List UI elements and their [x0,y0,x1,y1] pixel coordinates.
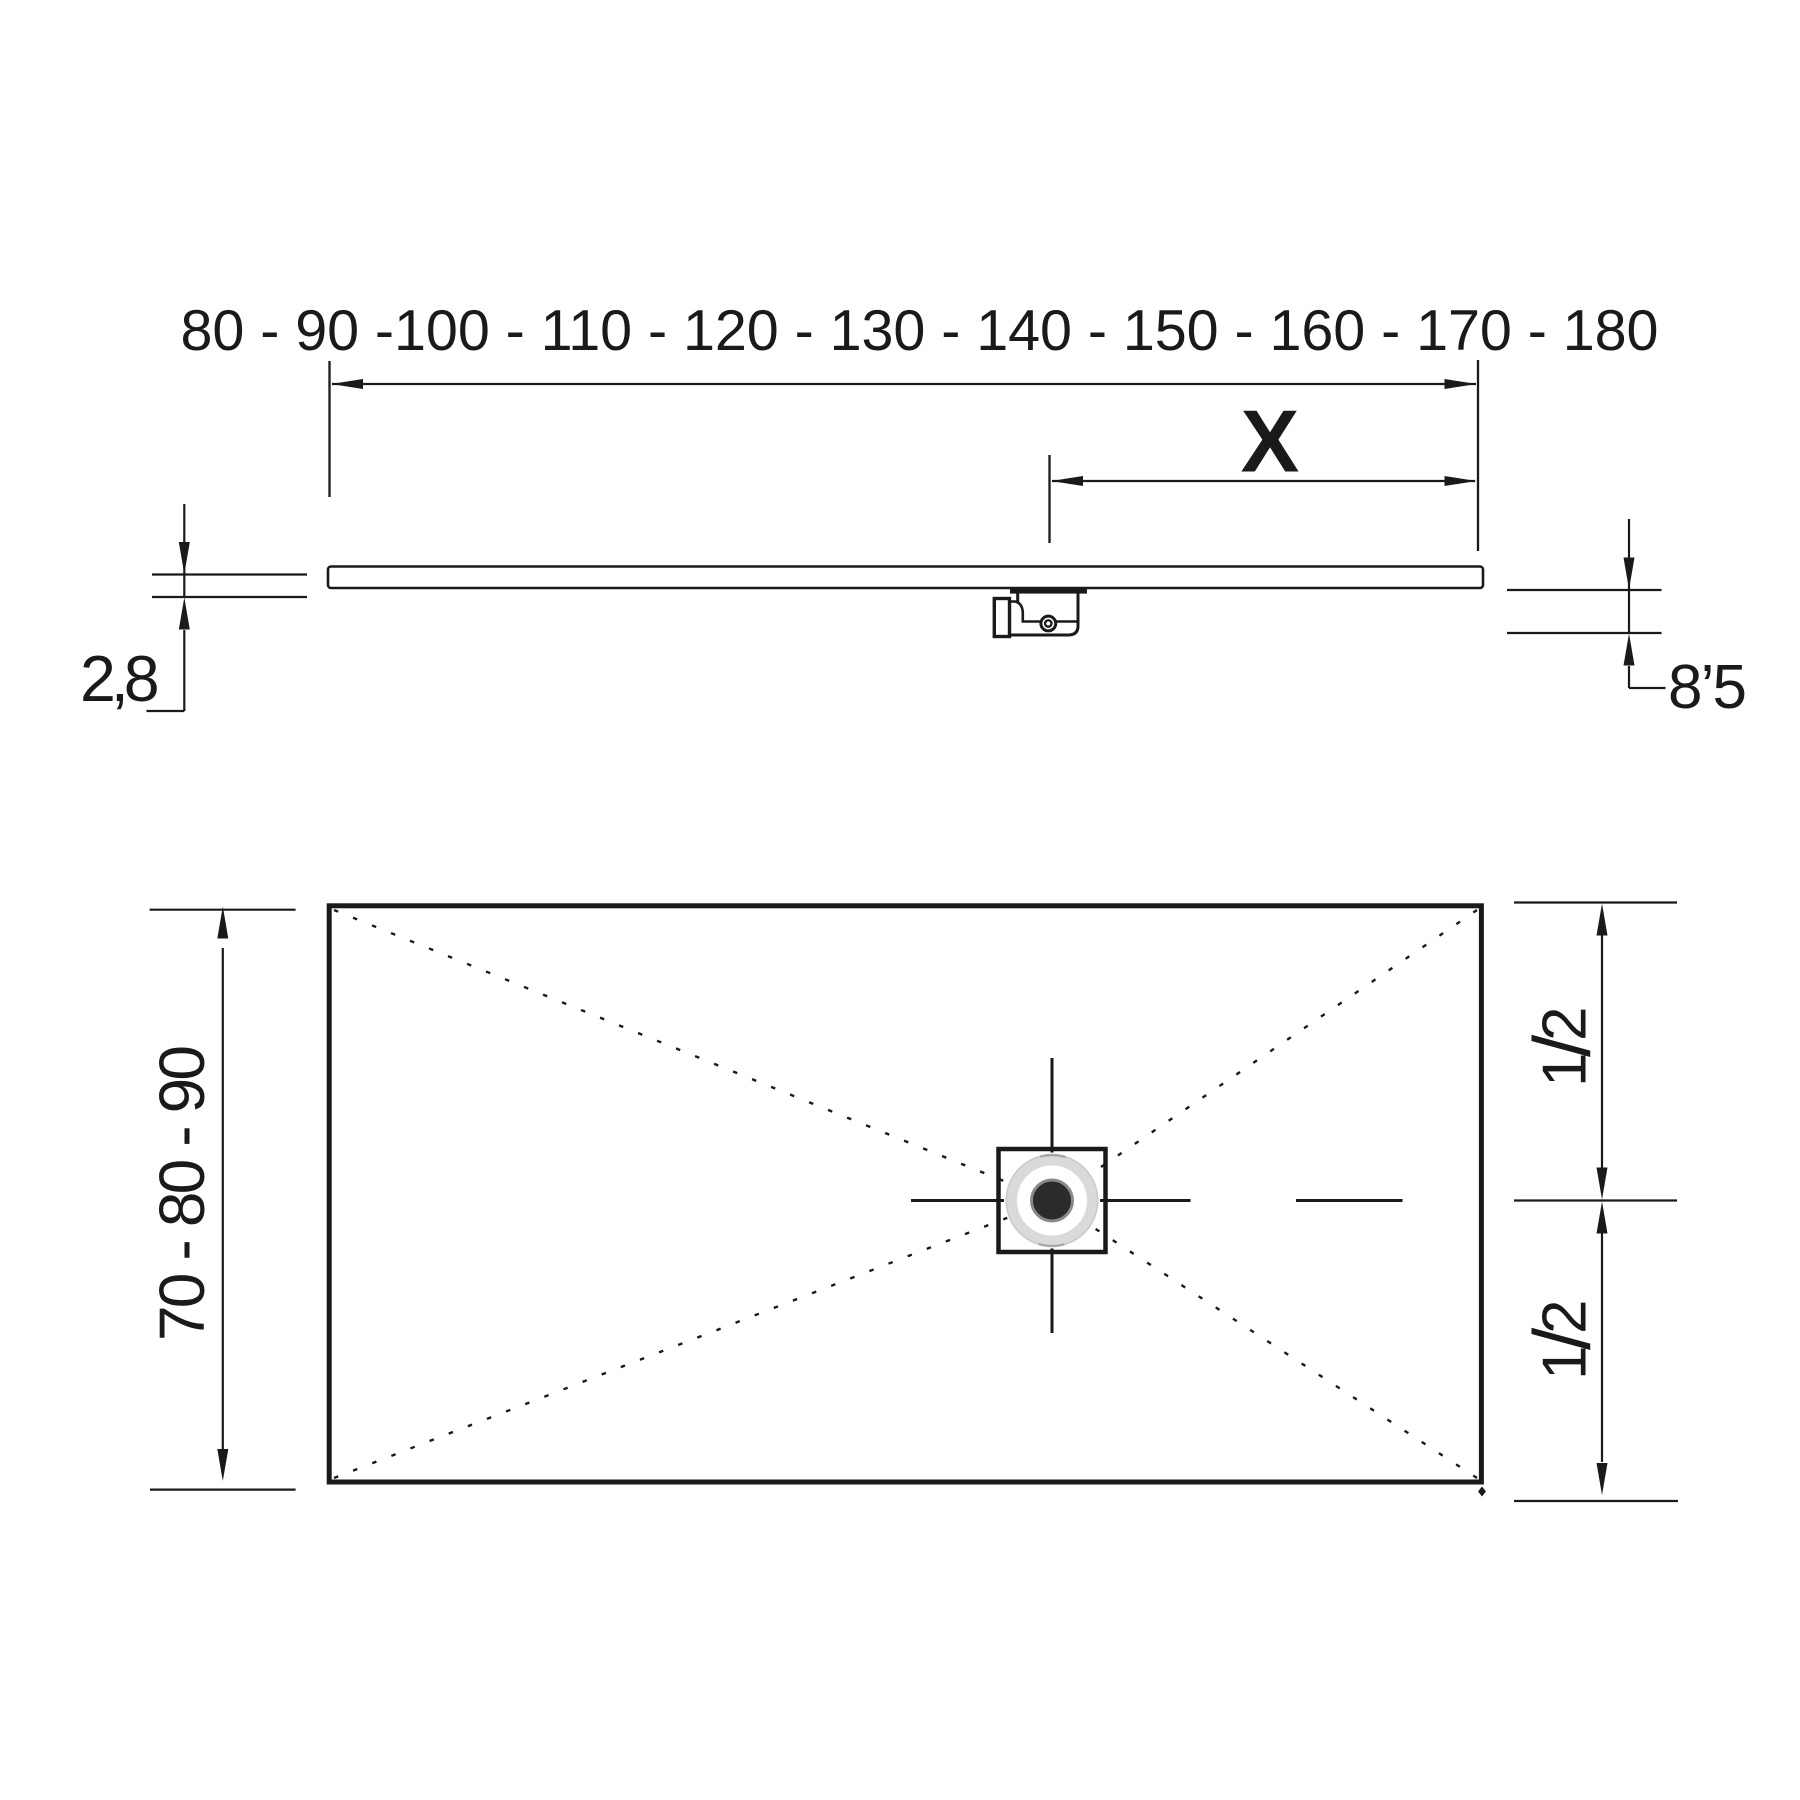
svg-text:X: X [1241,392,1300,491]
svg-text:80 - 90 -100 - 110 - 120 - 130: 80 - 90 -100 - 110 - 120 - 130 - 140 - 1… [181,299,1659,363]
svg-text:2,8: 2,8 [80,643,158,715]
svg-text:2: 2 [1531,1300,1600,1334]
svg-text:70 - 80 - 90: 70 - 80 - 90 [146,1045,218,1341]
svg-text:2: 2 [1531,1007,1600,1041]
svg-text:8’5: 8’5 [1668,653,1747,722]
